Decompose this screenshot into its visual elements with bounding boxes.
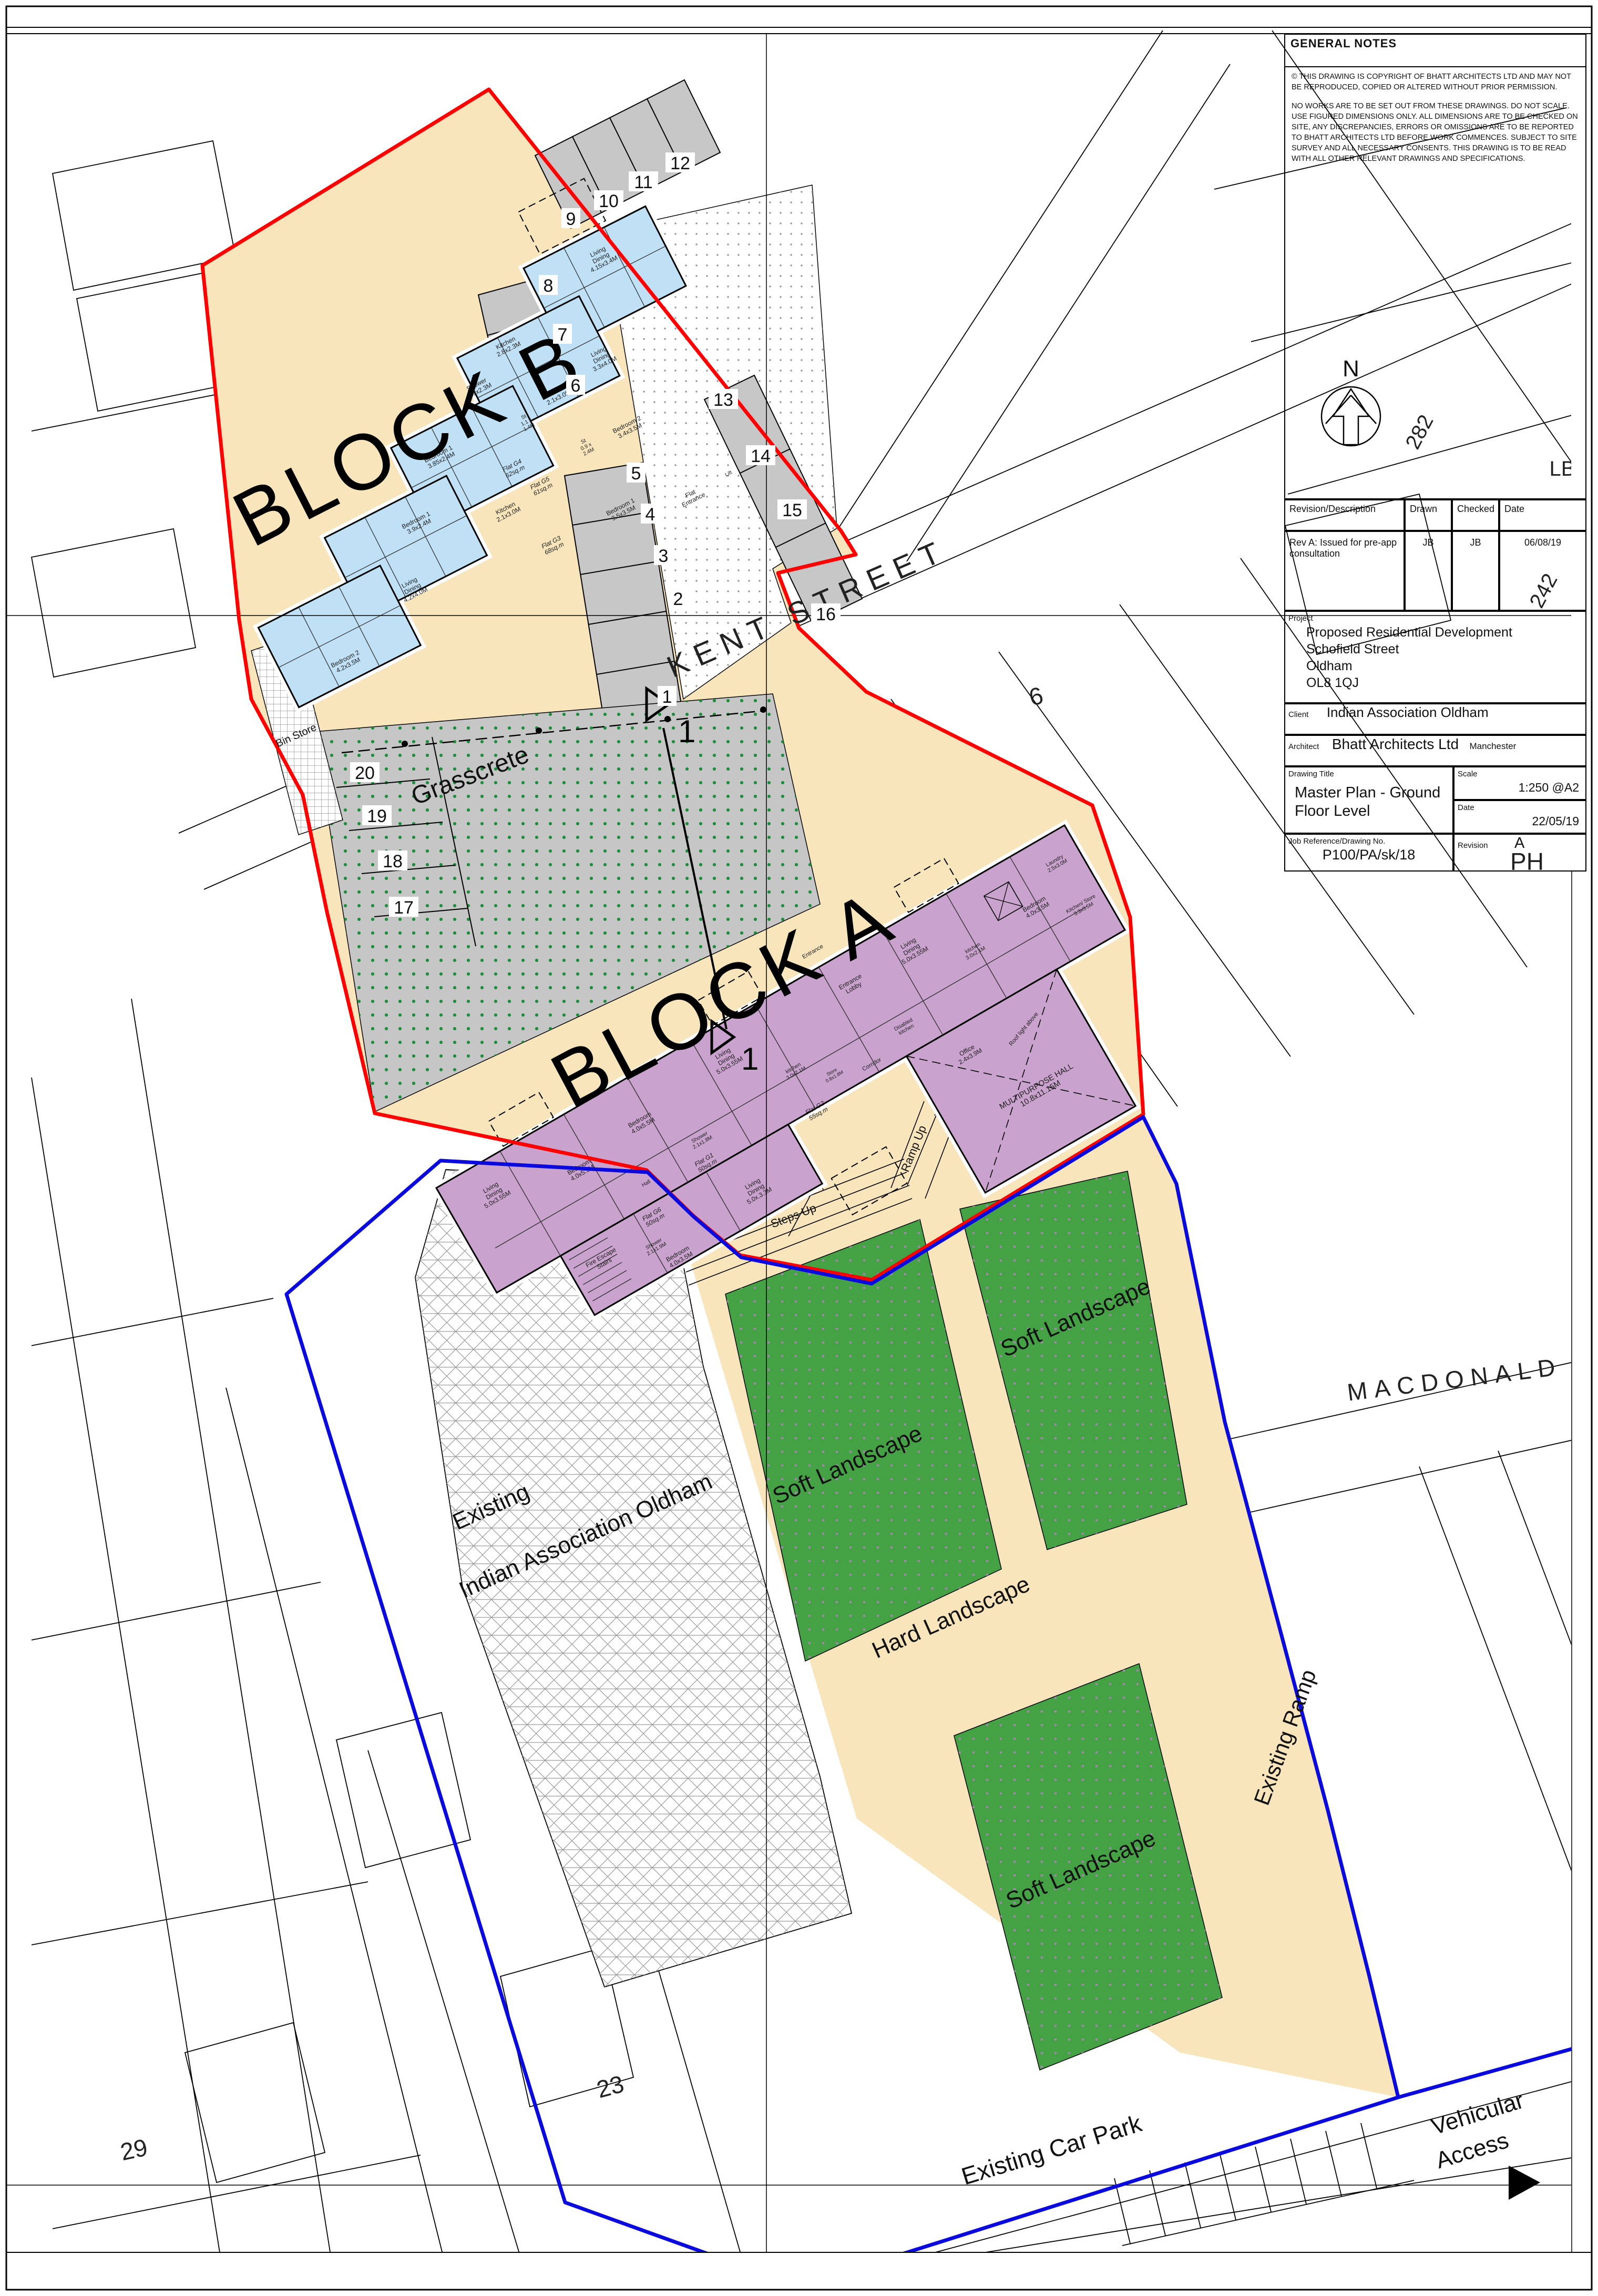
parking-space-12: 12 xyxy=(665,152,695,173)
scale-label: Scale xyxy=(1454,767,1585,778)
parking-space-3: 3 xyxy=(654,545,673,566)
general-notes-title: GENERAL NOTES xyxy=(1285,35,1585,53)
parking-space-8: 8 xyxy=(539,275,558,296)
revision-checked: JB xyxy=(1452,531,1499,611)
parcel-number: 29 xyxy=(118,2134,150,2166)
revision-box: Revision A xyxy=(1453,834,1586,872)
svg-text:1: 1 xyxy=(662,687,672,707)
revision-col-date: Date xyxy=(1499,499,1586,531)
parking-space-17: 17 xyxy=(389,897,418,918)
client-box: Client Indian Association Oldham xyxy=(1284,703,1586,735)
svg-text:9: 9 xyxy=(566,209,576,229)
project-value: Proposed Residential Development Schofie… xyxy=(1285,623,1585,691)
revision-col-description: Revision/Description xyxy=(1284,499,1405,531)
architect-value: Bhatt Architects Ltd xyxy=(1325,736,1459,753)
drawing-title-label: Drawing Title xyxy=(1285,767,1452,778)
general-notes-disclaimer: NO WORKS ARE TO BE SET OUT FROM THESE DR… xyxy=(1292,101,1579,164)
revision-value: A xyxy=(1514,835,1524,852)
drawing-title-value: Master Plan - Ground Floor Level xyxy=(1285,778,1452,821)
svg-text:7: 7 xyxy=(558,325,568,345)
existing-car-park-label: Existing Car Park xyxy=(958,2109,1145,2190)
jobref-label: Job Reference/Drawing No. xyxy=(1285,835,1452,846)
svg-text:4: 4 xyxy=(646,505,655,525)
date-label: Date xyxy=(1454,801,1585,812)
architect-label: Architect xyxy=(1285,740,1322,751)
parking-space-1: 1 xyxy=(658,686,677,707)
macdonald-label: MACDONALD xyxy=(1346,1352,1563,1406)
svg-text:19: 19 xyxy=(367,806,387,826)
date-box: Date 22/05/19 xyxy=(1453,800,1586,834)
revision-date: 06/08/19 xyxy=(1499,531,1586,611)
svg-text:17: 17 xyxy=(394,898,414,918)
client-value: Indian Association Oldham xyxy=(1314,704,1489,721)
parking-space-2: 2 xyxy=(669,588,688,609)
general-notes-body: © THIS DRAWING IS COPYRIGHT OF BHATT ARC… xyxy=(1284,67,1586,499)
general-notes-header: GENERAL NOTES xyxy=(1284,34,1586,67)
architect-city: Manchester xyxy=(1470,741,1517,752)
project-box: Project Proposed Residential Development… xyxy=(1284,611,1586,703)
svg-text:12: 12 xyxy=(670,153,690,173)
architect-box: Architect Bhatt Architects Ltd Mancheste… xyxy=(1284,735,1586,766)
revision-description: Rev A: Issued for pre-app consultation xyxy=(1284,531,1405,611)
vehicular-access-arrow-icon xyxy=(1509,2166,1540,2200)
parking-space-9: 9 xyxy=(561,208,580,229)
parcel-number: 23 xyxy=(593,2070,627,2103)
svg-text:11: 11 xyxy=(634,172,652,192)
svg-text:8: 8 xyxy=(544,276,554,296)
svg-text:14: 14 xyxy=(751,446,771,466)
parking-space-16: 16 xyxy=(811,603,841,624)
svg-text:5: 5 xyxy=(631,464,641,484)
date-value: 22/05/19 xyxy=(1454,812,1585,828)
svg-text:15: 15 xyxy=(782,500,802,520)
svg-text:13: 13 xyxy=(713,390,733,410)
svg-text:18: 18 xyxy=(383,852,403,872)
svg-text:10: 10 xyxy=(599,191,619,211)
parking-space-18: 18 xyxy=(378,850,407,872)
parking-space-20: 20 xyxy=(350,762,380,783)
parking-space-19: 19 xyxy=(362,805,392,826)
parking-space-13: 13 xyxy=(709,389,738,410)
drawing-sheet: LivingDining4.15x3.4MKitchen2.8x2.3MShow… xyxy=(0,0,1598,2296)
parking-space-5: 5 xyxy=(627,463,646,484)
section-number-top: 1 xyxy=(678,714,695,749)
scale-value: 1:250 @A2 xyxy=(1454,778,1585,795)
vehicular-access-label-1: Vehicular xyxy=(1428,2087,1527,2140)
svg-text:3: 3 xyxy=(659,546,669,566)
revision-drawn: JB xyxy=(1405,531,1452,611)
svg-text:6: 6 xyxy=(571,376,581,396)
section-number-bottom: 1 xyxy=(741,1041,759,1077)
parking-space-10: 10 xyxy=(594,190,623,211)
revision-col-drawn: Drawn xyxy=(1405,499,1452,531)
parking-space-6: 6 xyxy=(566,375,585,396)
project-label: Project xyxy=(1285,612,1585,623)
parking-space-14: 14 xyxy=(746,445,775,466)
jobref-box: Job Reference/Drawing No. P100/PA/sk/18 xyxy=(1284,834,1453,872)
svg-text:16: 16 xyxy=(816,604,836,624)
jobref-value: P100/PA/sk/18 xyxy=(1285,846,1452,863)
revision-label: Revision xyxy=(1454,839,1491,850)
parking-space-11: 11 xyxy=(629,171,658,192)
svg-text:20: 20 xyxy=(355,763,375,783)
parcel-number: 6 xyxy=(1026,681,1046,711)
revision-col-checked: Checked xyxy=(1452,499,1499,531)
general-notes-copyright: © THIS DRAWING IS COPYRIGHT OF BHATT ARC… xyxy=(1292,71,1579,93)
parking-space-4: 4 xyxy=(641,504,660,525)
svg-text:2: 2 xyxy=(673,589,683,609)
client-label: Client xyxy=(1285,708,1312,719)
scale-box: Scale 1:250 @A2 xyxy=(1453,766,1586,800)
parking-space-15: 15 xyxy=(777,499,807,520)
drawing-title-box: Drawing Title Master Plan - Ground Floor… xyxy=(1284,766,1453,834)
parking-space-7: 7 xyxy=(553,324,572,345)
